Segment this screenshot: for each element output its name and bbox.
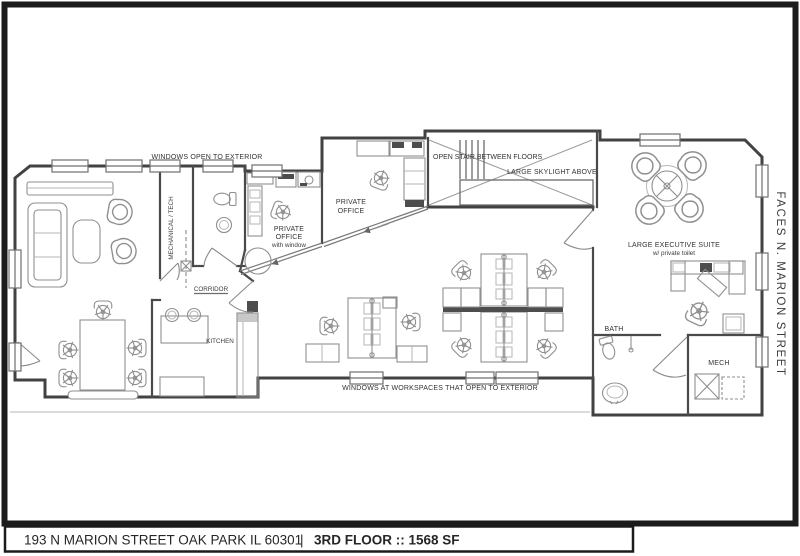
annotation-skylight: LARGE SKYLIGHT ABOVE (507, 169, 597, 176)
window (150, 160, 180, 172)
window (756, 253, 768, 290)
slide-arrow (272, 257, 292, 264)
tub-chair (626, 147, 663, 184)
storage-cabinet (546, 288, 563, 307)
label-mech: MECH (708, 360, 729, 367)
label-executive-suite-l1: LARGE EXECUTIVE SUITE (628, 242, 720, 249)
bench (68, 391, 138, 399)
storage-cabinet (528, 288, 546, 307)
toilet-icon (214, 193, 236, 206)
task-chair (401, 313, 421, 331)
sink-icon (217, 218, 232, 233)
label-private-office-1-l2: OFFICE (276, 234, 303, 241)
private-office-1 (245, 172, 320, 274)
task-chair (450, 259, 476, 285)
title-address: 193 N MARION STREET OAK PARK IL 60301 (24, 533, 302, 548)
window (106, 160, 142, 172)
glass-partitions (240, 206, 428, 275)
window (203, 160, 233, 172)
mech-tech-closet (160, 230, 191, 288)
pod-spine (443, 307, 563, 312)
desk (404, 158, 425, 200)
bathroom-bottom (599, 336, 687, 404)
window (756, 337, 768, 367)
annotation-windows-workspaces: WINDOWS AT WORKSPACES THAT OPEN TO EXTER… (342, 385, 538, 392)
task-chair (320, 317, 340, 335)
private-office-2 (357, 141, 425, 207)
annotation-windows-exterior: WINDOWS OPEN TO EXTERIOR (151, 154, 262, 161)
window (640, 134, 680, 146)
dining-chair (94, 301, 112, 321)
coffee-table (73, 220, 100, 263)
kitchen-counter (160, 377, 204, 396)
window (466, 372, 494, 384)
dining-chair (127, 339, 147, 357)
title-floor-info: 3RD FLOOR :: 1568 SF (314, 533, 460, 548)
storage-cabinet (461, 288, 480, 307)
task-chair (532, 334, 558, 360)
tub-chair (630, 192, 667, 229)
title-separator: | (300, 533, 304, 548)
annotation-faces-street: FACES N. MARION STREET (774, 191, 786, 376)
executive-chair (684, 297, 713, 327)
kitchen (160, 301, 258, 397)
lounge-chair (106, 198, 134, 227)
floorplan-page: WINDOWS OPEN TO EXTERIOR MECHANICAL / TE… (0, 0, 800, 556)
page-frame: 193 N MARION STREET OAK PARK IL 60301 | … (5, 5, 796, 552)
toilet-icon (599, 336, 617, 361)
bath-door (653, 337, 687, 377)
window (252, 165, 282, 177)
mech-unit-dashed (722, 377, 744, 399)
window (496, 372, 538, 384)
label-private-office-1-l3: with window (271, 242, 306, 249)
annotation-open-stair: OPEN STAIR BETWEEN FLOORS (433, 154, 542, 161)
dining-chair (59, 369, 79, 387)
label-private-office-2-l2: OFFICE (338, 208, 365, 215)
dining-table-set (59, 301, 146, 399)
label-mechanical-tech: MECHANICAL / TECH (168, 196, 175, 260)
window (52, 160, 88, 172)
exec-entry-door (564, 210, 593, 249)
dining-table (80, 320, 125, 390)
stair-landing (460, 180, 593, 205)
mech-tech-door (160, 263, 179, 281)
label-corridor: CORRIDOR (194, 286, 229, 293)
label-executive-suite-l2: w/ private toilet (652, 250, 695, 257)
sofa (28, 203, 67, 287)
label-bath: BATH (605, 326, 624, 333)
workstation-pod-right (443, 254, 563, 362)
label-private-office-2-l1: PRIVATE (336, 199, 366, 206)
floorplan-drawing: WINDOWS OPEN TO EXTERIOR MECHANICAL / TE… (0, 0, 800, 556)
kitchen-counter (237, 313, 258, 397)
workstation-pod-left (306, 297, 427, 362)
dining-chair (127, 369, 147, 387)
window (756, 165, 768, 197)
lounge-area (18, 182, 146, 399)
bathroom-door (204, 248, 237, 266)
window (9, 343, 21, 371)
label-kitchen: KITCHEN (206, 338, 234, 345)
window (350, 372, 383, 384)
dining-chair (59, 341, 79, 359)
bathroom-top (204, 193, 237, 267)
slide-arrow (364, 224, 388, 232)
mech-room (695, 374, 744, 399)
task-chair (450, 333, 476, 359)
task-chair (532, 258, 558, 284)
label-private-office-1-l1: PRIVATE (274, 226, 304, 233)
office-chair (369, 167, 392, 191)
round-table (245, 248, 271, 274)
storage-cabinet (443, 288, 461, 307)
executive-suite (626, 146, 745, 333)
lounge-chair (110, 237, 138, 266)
window (9, 250, 21, 288)
executive-desk (671, 261, 745, 333)
office-chair (270, 200, 294, 223)
